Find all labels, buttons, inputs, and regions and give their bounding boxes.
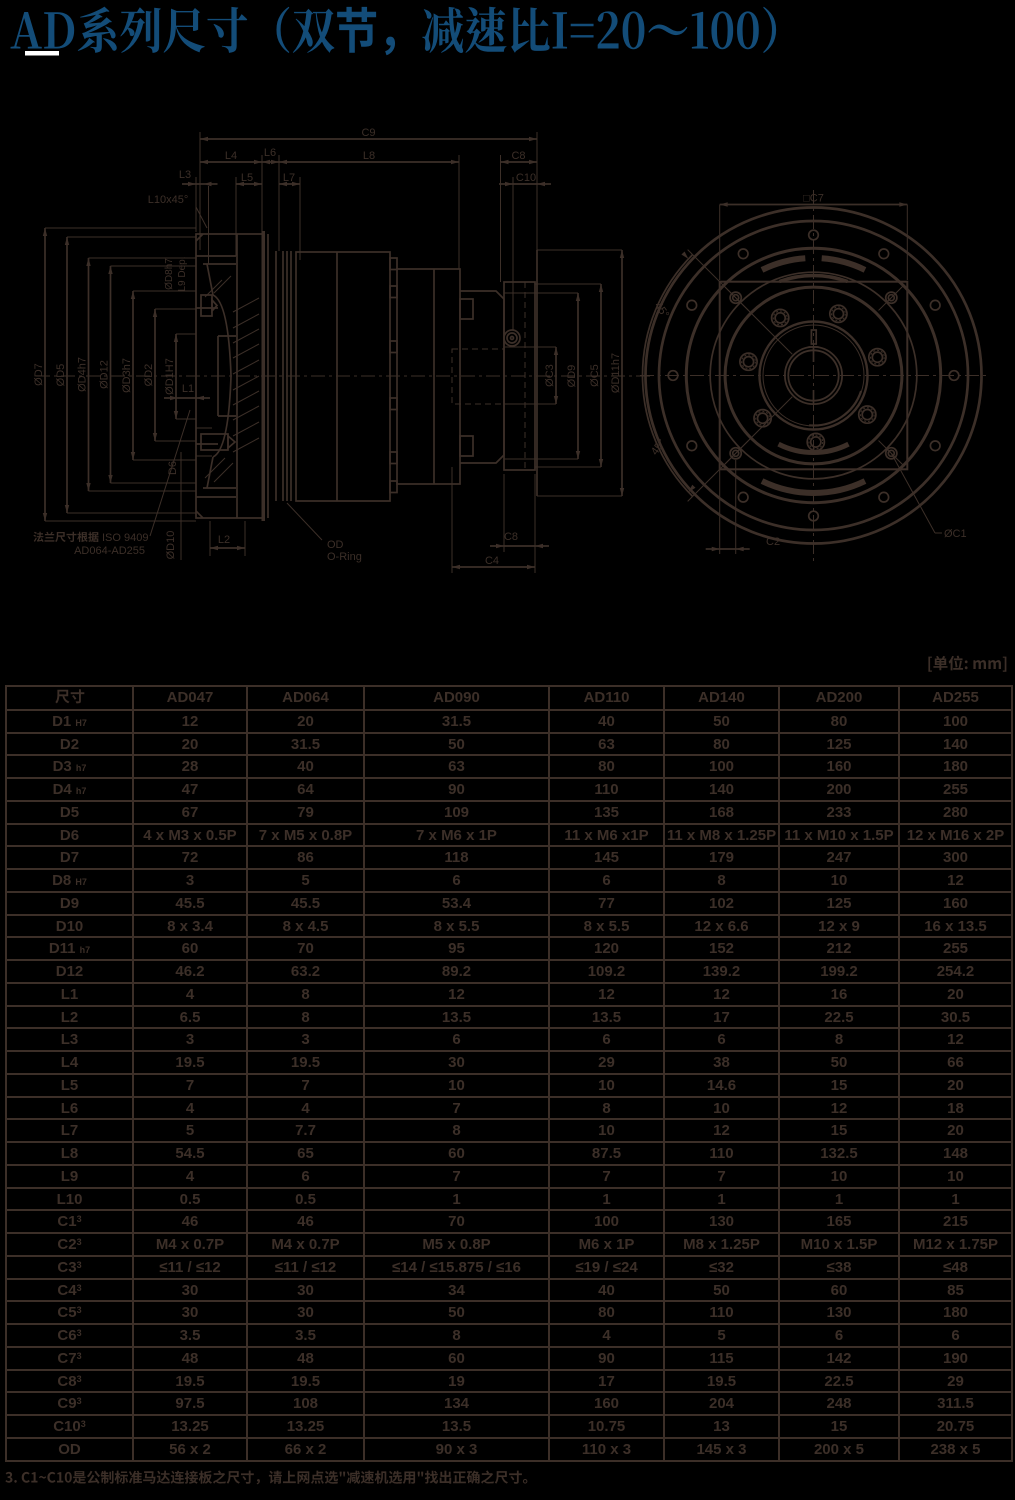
- svg-text:□C7: □C7: [803, 193, 824, 205]
- svg-text:ØD2: ØD2: [143, 364, 155, 387]
- svg-text:O-Ring: O-Ring: [327, 551, 362, 563]
- svg-text:L1: L1: [182, 383, 194, 395]
- svg-text:L5: L5: [241, 172, 253, 184]
- svg-text:L2: L2: [218, 534, 230, 546]
- svg-text:ØD4h7: ØD4h7: [77, 357, 89, 392]
- svg-text:C4: C4: [485, 555, 499, 567]
- svg-text:C9: C9: [361, 127, 375, 139]
- svg-text:L4: L4: [225, 150, 237, 162]
- svg-text:ØC1: ØC1: [944, 528, 967, 540]
- svg-text:ØD11h7: ØD11h7: [610, 353, 622, 393]
- svg-text:L8: L8: [363, 150, 375, 162]
- svg-text:ØD5: ØD5: [55, 364, 67, 387]
- svg-text:ØD10: ØD10: [165, 531, 177, 560]
- svg-text:OD: OD: [327, 539, 344, 551]
- svg-text:L9 Dep.: L9 Dep.: [177, 256, 188, 291]
- svg-text:L10x45°: L10x45°: [148, 194, 189, 206]
- svg-text:L7: L7: [283, 172, 295, 184]
- svg-text:ØD1H7: ØD1H7: [164, 358, 176, 395]
- svg-text:ØC5: ØC5: [589, 364, 601, 387]
- svg-text:C2: C2: [766, 536, 780, 548]
- svg-text:L3: L3: [179, 169, 191, 181]
- svg-text:L6: L6: [264, 147, 276, 159]
- svg-text:C8: C8: [504, 531, 518, 543]
- svg-text:ØD8h7: ØD8h7: [164, 258, 175, 290]
- svg-text:ØD7: ØD7: [33, 363, 45, 386]
- svg-text:ØD3h7: ØD3h7: [121, 358, 133, 393]
- svg-text:ØD12: ØD12: [99, 360, 111, 389]
- svg-text:ØD9: ØD9: [566, 365, 578, 388]
- svg-text:C8: C8: [511, 150, 525, 162]
- svg-text:ISO 9409: ISO 9409: [102, 532, 148, 544]
- svg-text:AD064-AD255: AD064-AD255: [74, 545, 145, 557]
- svg-text:ØC3: ØC3: [544, 364, 556, 387]
- svg-text:C10: C10: [516, 172, 536, 184]
